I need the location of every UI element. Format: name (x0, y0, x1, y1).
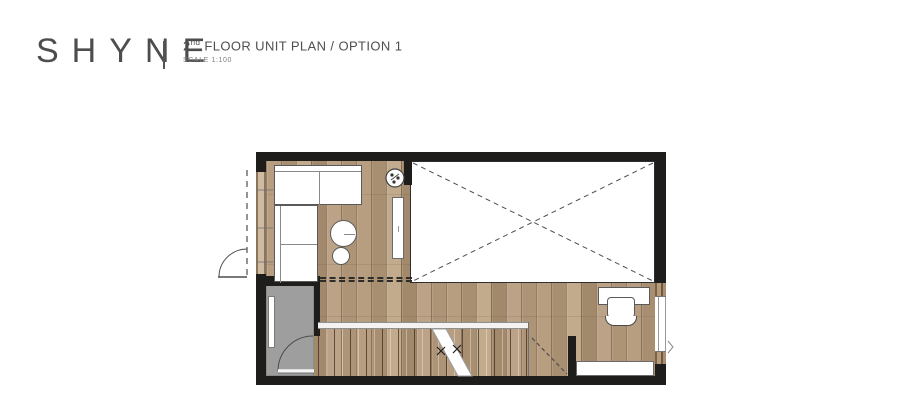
title-block: 2nd FLOOR UNIT PLAN / OPTION 1 SCALE 1:1… (183, 38, 402, 64)
balcony-door-swing (218, 170, 247, 277)
bath-shelf (268, 296, 275, 348)
tv-console-mark (398, 226, 399, 232)
wall-hatch-lower (655, 352, 666, 364)
wall-stair-stub (568, 336, 576, 376)
wall-bottom (256, 376, 666, 385)
plan-title-ordinal: nd (191, 38, 201, 47)
coffee-table-mark (344, 234, 355, 235)
stair-edge-line (528, 322, 529, 376)
stool (332, 247, 350, 265)
plan-title-rest: FLOOR UNIT PLAN / OPTION 1 (200, 38, 402, 53)
wall-void-stub (404, 161, 412, 185)
wall-left-lower (256, 274, 266, 385)
overhead-edge-dashed-line (320, 277, 412, 282)
wall-top (256, 152, 666, 161)
l-shaped-sofa-top (274, 165, 362, 205)
balcony-door-frame (256, 172, 266, 274)
scale-label: SCALE 1:100 (183, 57, 402, 64)
low-cabinet (576, 361, 654, 376)
tv-console (392, 197, 404, 259)
sofa-back-line (275, 171, 361, 172)
plan-title-number: 2 (183, 38, 191, 53)
window-right (655, 296, 666, 352)
desk-chair-backrest (605, 316, 637, 326)
desk-chair-seat (607, 297, 635, 318)
wall-hatch-upper (655, 283, 666, 296)
coffee-table (330, 220, 357, 247)
page: SHYNE 2nd FLOOR UNIT PLAN / OPTION 1 SCA… (0, 0, 900, 417)
sofa-cushion-divider (319, 171, 320, 206)
void-open-to-below (410, 161, 655, 283)
staircase (318, 329, 528, 376)
plan-title: 2nd FLOOR UNIT PLAN / OPTION 1 (183, 38, 402, 53)
wall-left-top-stub (256, 152, 266, 172)
l-shaped-sofa-left (274, 205, 318, 282)
stair-railing (318, 322, 528, 329)
right-wall-marker-icon (668, 341, 673, 353)
sofa-cushion-divider-left (280, 244, 317, 245)
title-separator (163, 41, 165, 69)
floor-plan (256, 152, 666, 385)
